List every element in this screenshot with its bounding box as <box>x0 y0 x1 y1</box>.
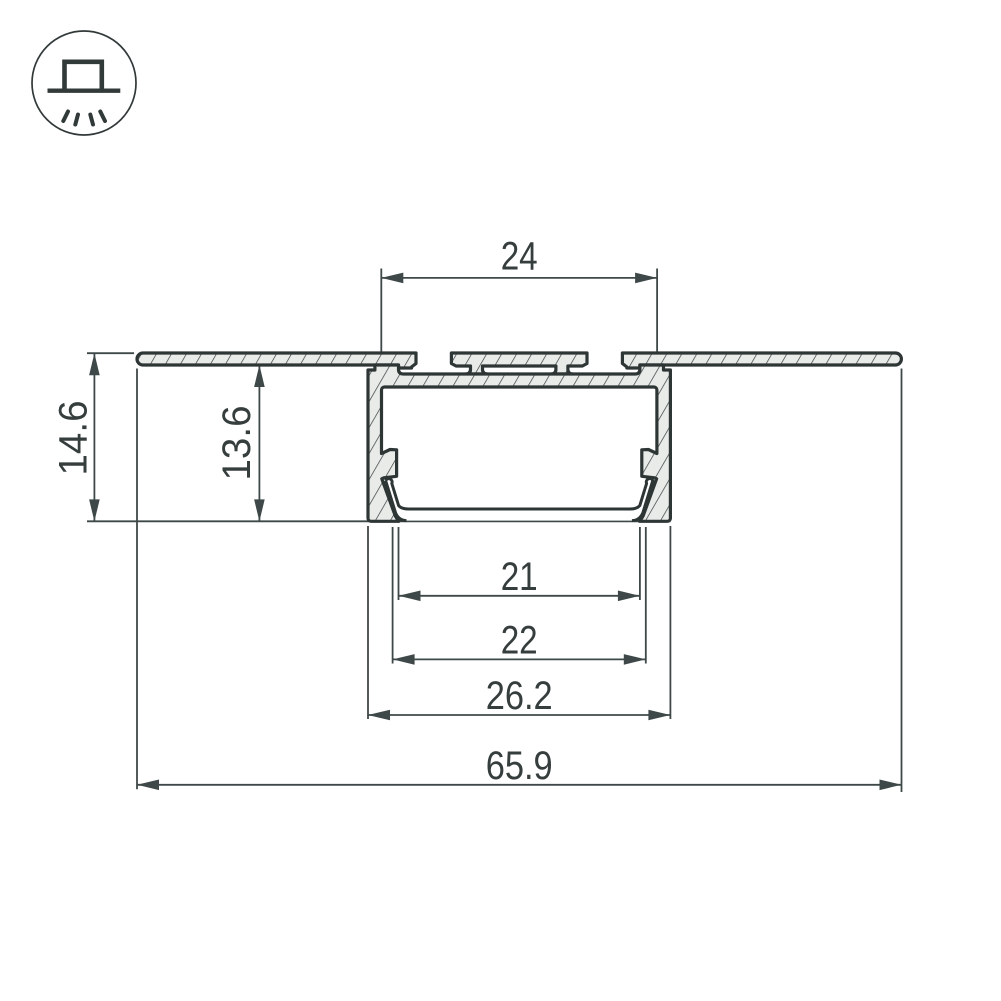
svg-text:14.6: 14.6 <box>52 401 96 476</box>
svg-text:65.9: 65.9 <box>486 744 553 788</box>
svg-text:22: 22 <box>501 618 538 662</box>
svg-text:26.2: 26.2 <box>486 674 553 718</box>
svg-text:13.6: 13.6 <box>215 406 259 481</box>
svg-text:24: 24 <box>501 235 538 279</box>
svg-text:21: 21 <box>501 555 538 599</box>
